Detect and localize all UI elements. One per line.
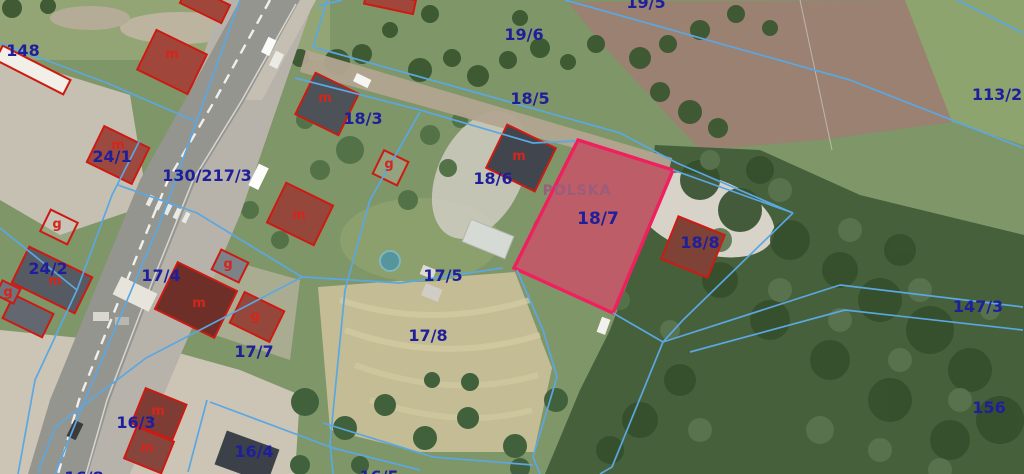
highlighted-parcel-label: 18/7 <box>577 209 619 229</box>
map-label: 148 <box>6 41 39 60</box>
map-label: m <box>318 91 332 106</box>
map-label: 18/8 <box>680 233 719 252</box>
map-label: 130/217/3 <box>162 166 252 185</box>
map-label: 17/5 <box>423 266 462 285</box>
map-label: 17/8 <box>408 326 447 345</box>
map-label: 18/3 <box>343 109 382 128</box>
map-label: 16/5 <box>359 467 398 474</box>
map-label: 156 <box>972 398 1005 417</box>
map-label: m <box>192 296 206 311</box>
map-label: m <box>151 404 165 419</box>
pool <box>380 251 400 271</box>
map-label: g <box>52 217 61 232</box>
map-label: m <box>111 138 125 153</box>
map-viewport[interactable]: 14824/1130/217/317/424/218/319/619/518/5… <box>0 0 1024 474</box>
map-label: g <box>3 285 12 300</box>
polska-watermark: POLSKA <box>543 183 612 199</box>
map-label: 16/3 <box>116 413 155 432</box>
map-label: 113/2 <box>972 85 1022 104</box>
map-label: 19/5 <box>626 0 665 12</box>
map-label: g <box>223 257 232 272</box>
map-label: g <box>384 157 393 172</box>
map-label: m <box>48 274 62 289</box>
map-label: m <box>292 208 306 223</box>
aerial-map-canvas[interactable]: 14824/1130/217/317/424/218/319/619/518/5… <box>0 0 1024 474</box>
map-label: 19/6 <box>504 25 543 44</box>
map-label: g <box>250 309 259 324</box>
map-label: 17/4 <box>141 266 180 285</box>
map-label: 18/6 <box>473 169 512 188</box>
map-label: 16/8 <box>64 468 103 474</box>
map-label: 16/4 <box>234 442 273 461</box>
map-label: m <box>165 47 179 62</box>
map-label: 18/5 <box>510 89 549 108</box>
map-label: 147/3 <box>953 297 1003 316</box>
map-label: m <box>512 149 526 164</box>
map-label: 17/7 <box>234 342 273 361</box>
map-label: m <box>140 441 154 456</box>
